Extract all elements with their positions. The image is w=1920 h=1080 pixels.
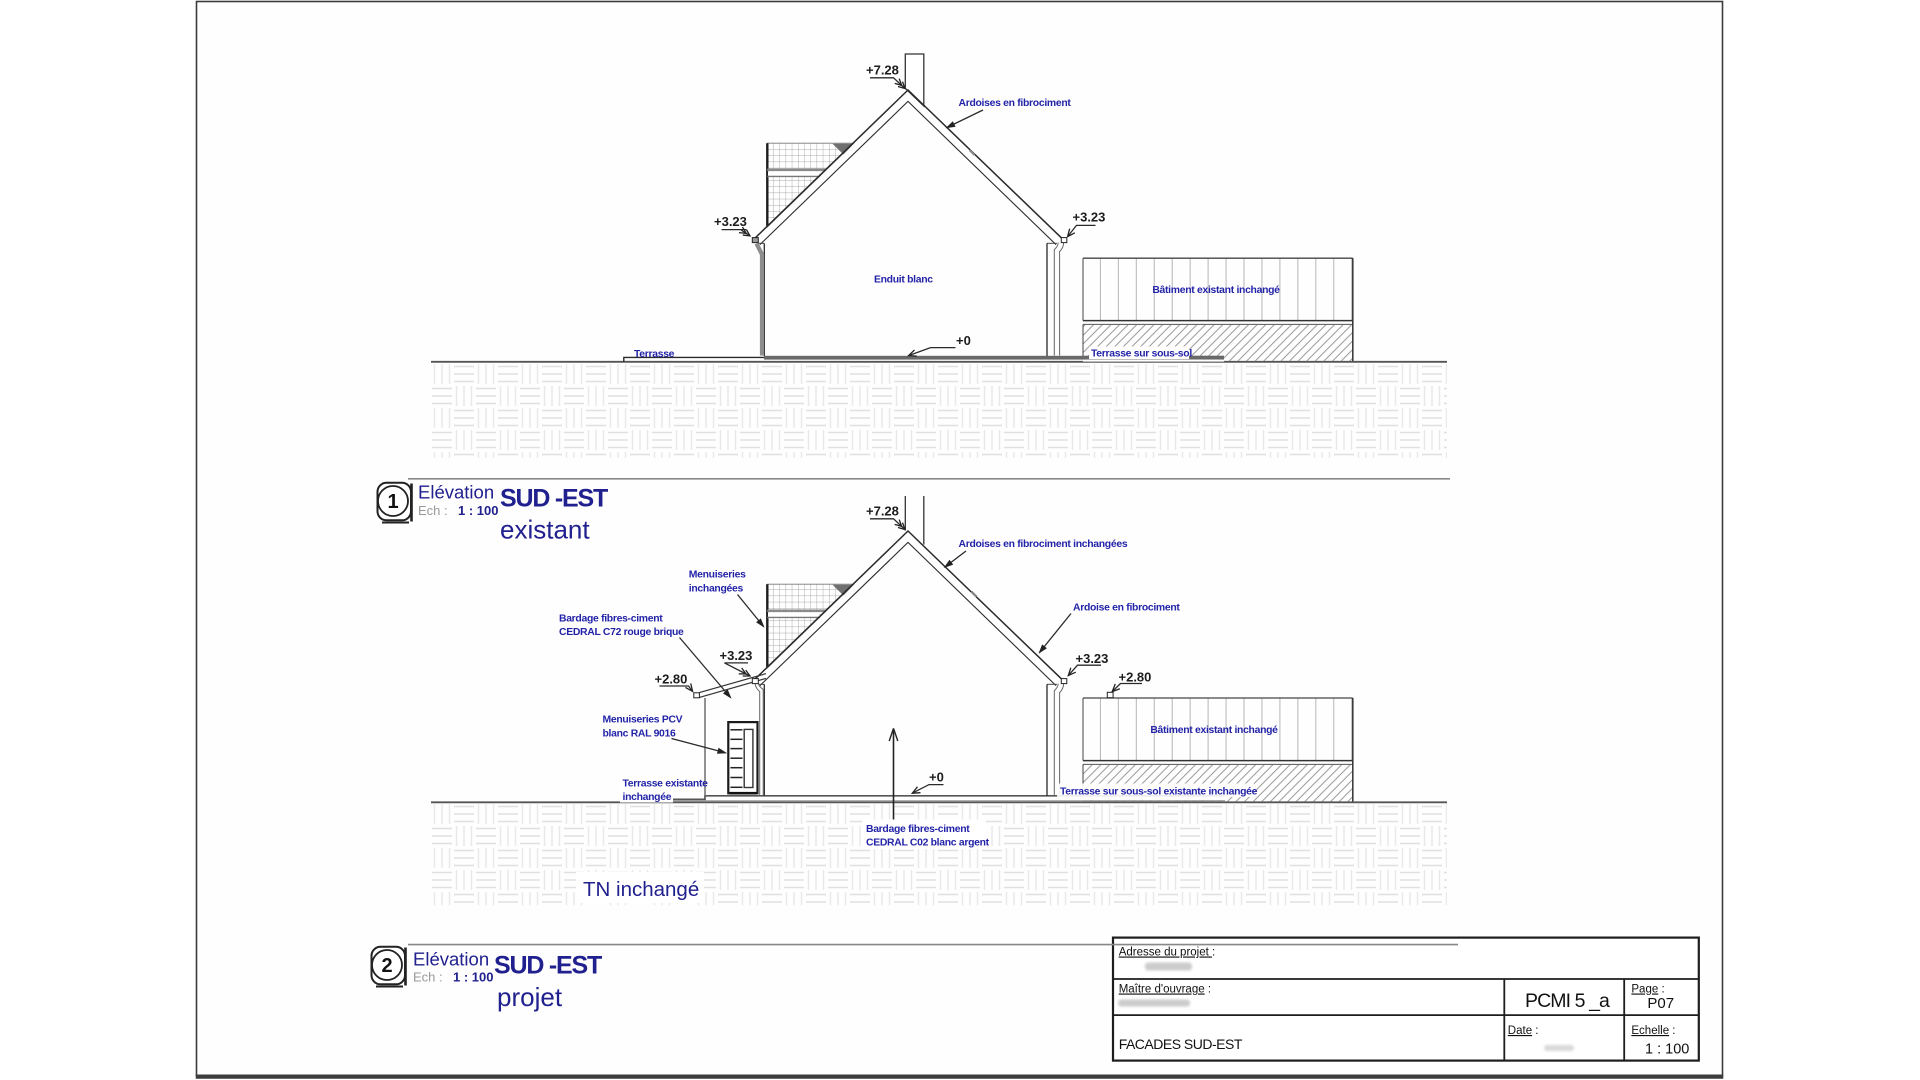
svg-text:1 : 100: 1 : 100 <box>458 503 498 518</box>
svg-text:Menuiseries: Menuiseries <box>689 570 746 581</box>
svg-text:Ardoise en fibrociment: Ardoise en fibrociment <box>1073 603 1180 614</box>
svg-text:Ardoises en fibrociment: Ardoises en fibrociment <box>959 98 1072 109</box>
svg-text:existant: existant <box>500 515 590 545</box>
svg-text:P07: P07 <box>1647 995 1674 1012</box>
svg-text:Enduit blanc: Enduit blanc <box>874 275 933 286</box>
svg-text:Maître d'ouvrage :: Maître d'ouvrage : <box>1119 984 1211 996</box>
svg-text:+2.80: +2.80 <box>655 671 688 686</box>
svg-text:Terrasse sur sous-sol existant: Terrasse sur sous-sol existante inchangé… <box>1060 787 1258 798</box>
svg-text:1 : 100: 1 : 100 <box>1645 1042 1689 1058</box>
svg-text:1: 1 <box>387 491 398 513</box>
svg-text:Bardage fibres-ciment: Bardage fibres-ciment <box>866 824 970 835</box>
svg-text:Terrasse: Terrasse <box>634 349 675 360</box>
svg-text:+7.28: +7.28 <box>866 504 899 519</box>
svg-text:Elévation: Elévation <box>413 949 489 970</box>
svg-text:SUD -EST: SUD -EST <box>500 485 608 513</box>
svg-text:inchangées: inchangées <box>689 584 744 595</box>
svg-text:Menuiseries PCV: Menuiseries PCV <box>603 715 683 726</box>
svg-text:SUD -EST: SUD -EST <box>494 952 602 980</box>
svg-text:Bâtiment existant inchangé: Bâtiment existant inchangé <box>1150 725 1278 736</box>
svg-text:Terrasse sur sous-sol: Terrasse sur sous-sol <box>1091 349 1192 360</box>
svg-text:2: 2 <box>381 955 392 977</box>
svg-text:Ech :: Ech : <box>418 503 448 518</box>
svg-text:+0: +0 <box>956 333 971 348</box>
svg-text:Adresse du projet :: Adresse du projet : <box>1119 947 1216 959</box>
svg-text:Ech :: Ech : <box>413 970 443 985</box>
svg-text:Elévation: Elévation <box>418 482 494 503</box>
svg-text:TN inchangé: TN inchangé <box>583 878 699 901</box>
svg-text:Bâtiment existant inchangé: Bâtiment existant inchangé <box>1152 285 1280 296</box>
svg-text:+2.80: +2.80 <box>1119 670 1152 685</box>
svg-text:Date :: Date : <box>1508 1025 1539 1037</box>
svg-text:PCMI 5 _a: PCMI 5 _a <box>1525 990 1610 1012</box>
svg-text:Terrasse existante: Terrasse existante <box>623 779 709 790</box>
svg-text:Echelle :: Echelle : <box>1631 1025 1675 1037</box>
svg-text:+7.28: +7.28 <box>866 63 899 78</box>
svg-text:1 : 100: 1 : 100 <box>453 970 493 985</box>
svg-text:+3.23: +3.23 <box>714 214 747 229</box>
svg-text:Ardoises en fibrociment inchan: Ardoises en fibrociment inchangées <box>959 539 1128 550</box>
svg-text:+3.23: +3.23 <box>1076 651 1109 666</box>
svg-text:CEDRAL C02 blanc argent: CEDRAL C02 blanc argent <box>866 838 990 849</box>
svg-text:blanc RAL 9016: blanc RAL 9016 <box>603 729 677 740</box>
svg-text:+3.23: +3.23 <box>720 648 753 663</box>
svg-text:inchangée: inchangée <box>623 792 672 803</box>
svg-text:projet: projet <box>497 982 563 1012</box>
svg-text:FACADES SUD-EST: FACADES SUD-EST <box>1119 1036 1243 1052</box>
svg-text:+3.23: +3.23 <box>1073 210 1106 225</box>
svg-text:Page :: Page : <box>1631 984 1664 996</box>
svg-text:CEDRAL C72 rouge brique: CEDRAL C72 rouge brique <box>559 627 684 638</box>
svg-text:Bardage fibres-ciment: Bardage fibres-ciment <box>559 614 663 625</box>
svg-text:+0: +0 <box>929 770 944 785</box>
